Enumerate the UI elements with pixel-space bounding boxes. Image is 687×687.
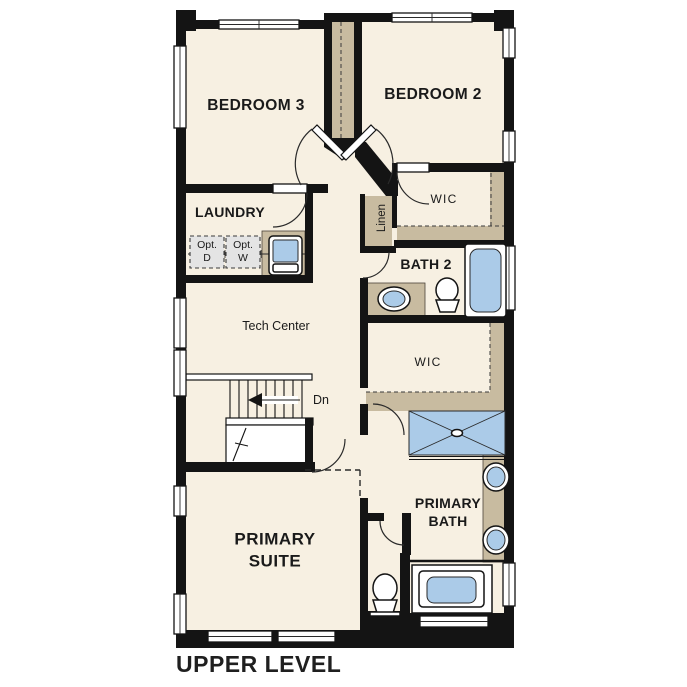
primary-suite-line2: SUITE xyxy=(234,551,315,573)
room-label-laundry: LAUNDRY xyxy=(195,204,265,220)
floor-plan: BEDROOM 3 BEDROOM 2 LAUNDRY Opt. D Opt. … xyxy=(0,0,687,687)
primary-sink-2 xyxy=(483,526,509,554)
floor-plan-canvas xyxy=(0,0,687,687)
opt-washer-line2: W xyxy=(233,252,253,265)
primary-bath-line2: BATH xyxy=(415,512,481,530)
primary-sink-1 xyxy=(483,463,509,491)
chase xyxy=(332,20,354,142)
opt-dryer-label: Opt. D xyxy=(197,239,217,265)
plan-title: UPPER LEVEL xyxy=(176,651,341,678)
opt-washer-line1: Opt. xyxy=(233,239,253,252)
bath2-toilet xyxy=(436,278,459,312)
primary-bath-line1: PRIMARY xyxy=(415,494,481,512)
room-label-wic-lower: WIC xyxy=(415,355,442,369)
primary-suite-line1: PRIMARY xyxy=(234,529,315,551)
opt-dryer-line2: D xyxy=(197,252,217,265)
room-label-tech-center: Tech Center xyxy=(242,319,309,333)
bath2-bathtub xyxy=(465,244,506,317)
stairs-dn-label: Dn xyxy=(313,393,329,407)
laundry-sink xyxy=(269,236,302,275)
room-label-linen: Linen xyxy=(376,204,388,232)
opt-washer-label: Opt. W xyxy=(233,239,253,265)
room-label-bedroom3: BEDROOM 3 xyxy=(207,97,304,115)
shower xyxy=(409,411,505,455)
room-label-bath2: BATH 2 xyxy=(400,256,451,272)
bath2-sink xyxy=(378,287,410,311)
primary-bathtub xyxy=(412,565,492,613)
room-label-wic-upper: WIC xyxy=(431,192,458,206)
room-label-primary-suite: PRIMARY SUITE xyxy=(234,529,315,574)
opt-dryer-line1: Opt. xyxy=(197,239,217,252)
room-label-primary-bath: PRIMARY BATH xyxy=(415,494,481,530)
room-label-bedroom2: BEDROOM 2 xyxy=(384,86,481,104)
